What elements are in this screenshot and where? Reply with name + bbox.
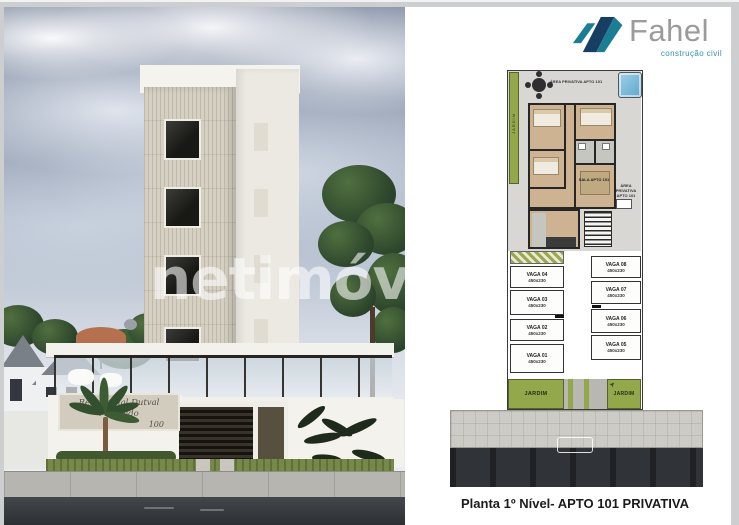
house-window — [10, 379, 22, 401]
entry-path — [564, 379, 607, 409]
garden-right: ➤ JARDIM — [607, 379, 641, 409]
interior-wall — [530, 149, 564, 151]
parking-stall: VAGA 07 450x230 — [591, 281, 641, 304]
bed-icon — [533, 157, 559, 175]
satellite-dish — [124, 319, 137, 330]
road-marking — [200, 509, 224, 511]
interior-wall — [574, 163, 614, 165]
garden-strip-label: JARDIM — [511, 113, 516, 134]
parking-stall: VAGA 08 450x230 — [591, 256, 641, 278]
building-render-photo: Residencial Dutval Machado 100 netimóve — [4, 7, 405, 525]
terrace-sofa — [68, 369, 94, 385]
kitchen-counter — [546, 237, 576, 247]
apartment-zone: JARDIM ÁREA PRIVATIVA APTO 101 — [508, 71, 641, 252]
apartment-outline: SALA APTO 101 — [528, 103, 616, 209]
entrance-doorway — [258, 407, 284, 463]
stall-dim: 450x230 — [607, 268, 625, 273]
garden-right-label: JARDIM — [614, 391, 635, 397]
parking-stall: VAGA 05 450x230 — [591, 335, 641, 360]
stall-dim: 450x230 — [528, 303, 546, 308]
netimoveis-watermark: netimóve — [150, 245, 405, 313]
area-label-top: ÁREA PRIVATIVA APTO 101 — [544, 79, 608, 84]
building-faint-window — [254, 123, 268, 151]
building-window — [164, 187, 201, 228]
entrance-arrow-icon: ➤ — [608, 380, 617, 389]
path-green-strip — [584, 379, 589, 409]
building-window — [164, 119, 201, 160]
street — [4, 497, 405, 525]
fahel-logo-icon — [572, 14, 626, 56]
floor-plan: JARDIM ÁREA PRIVATIVA APTO 101 — [507, 70, 643, 410]
road-marking — [144, 507, 174, 509]
fahel-logo-tagline: construção civil — [630, 49, 722, 58]
building-faint-window — [254, 189, 268, 217]
gate-marker — [592, 305, 601, 308]
stall-dim: 450x230 — [607, 293, 625, 298]
car-outline-icon — [557, 437, 593, 453]
stall-dim: 450x230 — [528, 278, 546, 283]
parking-stall: VAGA 04 450x230 — [510, 266, 564, 288]
bed-icon — [580, 108, 612, 126]
path-green-strip — [568, 379, 573, 409]
garden-left: JARDIM — [508, 379, 564, 409]
interior-wall — [564, 105, 566, 189]
parking-stall: VAGA 03 450x230 — [510, 290, 564, 315]
pool-icon — [618, 72, 642, 98]
laundry-area — [532, 213, 546, 247]
kitchen-extension — [528, 209, 580, 249]
stall-dim: 450x230 — [528, 359, 546, 364]
sala-label: SALA APTO 101 — [576, 177, 612, 182]
garden-left-label: JARDIM — [525, 391, 548, 397]
fahel-logo-text: Fahel — [629, 13, 709, 49]
bath-fixture — [578, 143, 586, 150]
listing-image-root: Residencial Dutval Machado 100 netimóve … — [0, 0, 739, 525]
stall-dim: 450x230 — [607, 322, 625, 327]
hatched-area — [510, 251, 564, 264]
garden-strip: JARDIM — [509, 72, 519, 184]
patio-fixture — [616, 199, 632, 209]
property-wall-left — [4, 411, 50, 469]
sidewalk — [4, 471, 405, 498]
area-label-right: ÁREA PRIVATIVA APTO 101 — [612, 183, 640, 198]
plan-street — [450, 448, 703, 487]
parking-zone: VAGA 04 450x230 VAGA 03 450x230 VAGA 02 … — [508, 251, 641, 379]
gate-marker — [555, 315, 564, 318]
parking-stall: VAGA 02 450x230 — [510, 319, 564, 341]
garden-zone: JARDIM ➤ JARDIM — [508, 379, 641, 409]
bath-fixture — [602, 143, 610, 150]
parking-stall: VAGA 06 450x230 — [591, 309, 641, 333]
interior-wall — [530, 187, 564, 189]
stall-dim: 450x230 — [528, 331, 546, 336]
living-room-rug — [580, 171, 610, 195]
stall-dim: 450x230 — [607, 348, 625, 353]
plan-caption: Planta 1º Nível- APTO 101 PRIVATIVA — [440, 496, 710, 511]
bed-icon — [533, 109, 561, 127]
parking-stall: VAGA 01 450x230 — [510, 344, 564, 373]
stairs-icon — [584, 211, 612, 247]
